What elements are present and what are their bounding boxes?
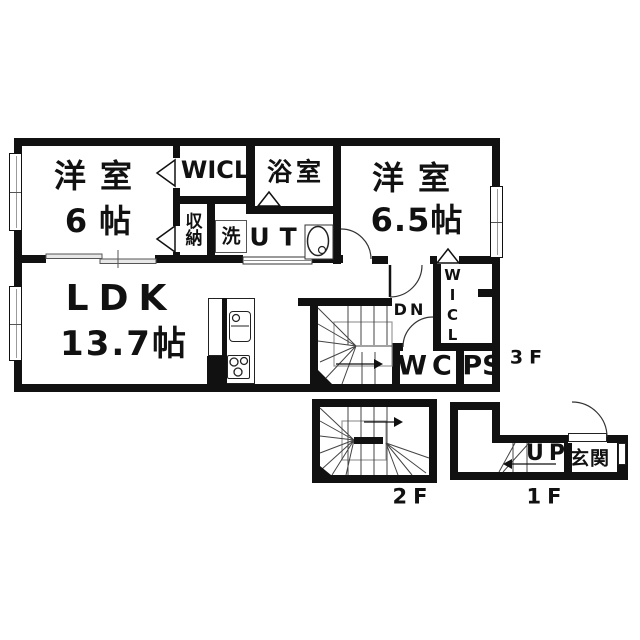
label-washer: 洗 — [221, 228, 240, 247]
label-floor-1f: 1F — [527, 487, 568, 508]
folding-door-wicl-top-icon — [157, 160, 175, 186]
sink-detail — [231, 315, 249, 327]
door-arc-entrance — [572, 402, 607, 437]
label-wicl-side: WICL — [445, 266, 460, 346]
label-wicl-top: WICL — [181, 158, 249, 182]
label-ps: PS — [462, 353, 501, 380]
label-room2-name: 洋室 — [372, 162, 464, 194]
label-ldk-size: 13.7帖 — [60, 327, 188, 361]
label-storage: 収納 — [183, 212, 200, 246]
door-arc-room2 — [341, 229, 371, 259]
bath-door-icon — [258, 192, 280, 206]
label-up: UP — [526, 443, 570, 465]
stairs-2f-arrow-icon — [394, 417, 403, 427]
folding-door-storage-icon — [157, 226, 175, 252]
door-arc-wc — [403, 317, 433, 347]
label-room1-size: 6帖 — [65, 205, 143, 237]
stairs-2f — [320, 407, 429, 475]
label-floor-2f: 2F — [393, 487, 434, 508]
label-bath: 浴室 — [267, 160, 325, 185]
stairs-3f — [318, 306, 392, 384]
stairs-3f-arrow-icon — [374, 359, 383, 369]
label-wc: WC — [397, 353, 457, 380]
label-room2-size: 6.5帖 — [371, 204, 464, 236]
washbasin — [305, 225, 333, 259]
folding-door-wicl-side-icon — [437, 249, 459, 263]
sliding-door-room1-ldk — [46, 250, 156, 268]
label-dn: DN — [394, 302, 427, 318]
sliding-door-ut-hall — [243, 257, 312, 264]
label-ldk: LDK — [66, 281, 177, 317]
door-arc-hall — [390, 265, 422, 297]
stove-burners — [230, 358, 248, 377]
floor-plan: 洋室 6帖 WICL 浴室 洋室 6.5帖 収納 洗 UT LDK 13.7帖 … — [0, 0, 640, 640]
label-room1-name: 洋室 — [54, 160, 146, 192]
label-entrance: 玄関 — [570, 450, 610, 469]
label-floor-3f: 3F — [510, 349, 548, 368]
plan-linework — [0, 0, 640, 640]
label-ut: UT — [249, 225, 306, 250]
